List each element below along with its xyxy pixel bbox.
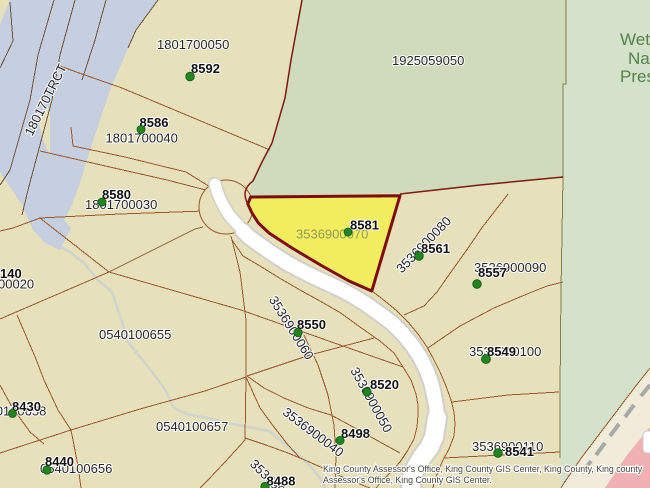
svg-text:Wetlan: Wetlan <box>620 30 650 49</box>
svg-text:0540100657: 0540100657 <box>156 419 228 434</box>
svg-text:8561: 8561 <box>421 241 450 256</box>
svg-text:Assessor's Office, King County: Assessor's Office, King County GIS Cente… <box>323 475 492 485</box>
svg-text:King County Assessor's Office,: King County Assessor's Office, King Coun… <box>323 464 643 474</box>
svg-text:Natur: Natur <box>628 49 650 68</box>
svg-text:8498: 8498 <box>341 426 370 441</box>
svg-text:8580: 8580 <box>102 187 131 202</box>
svg-text:Preser: Preser <box>620 67 650 86</box>
svg-text:1801700050: 1801700050 <box>157 37 229 52</box>
svg-text:8557: 8557 <box>478 265 507 280</box>
svg-text:8581: 8581 <box>350 218 379 233</box>
svg-text:8488: 8488 <box>267 474 296 488</box>
svg-text:8592: 8592 <box>191 61 220 76</box>
svg-text:00020: 00020 <box>0 277 34 292</box>
svg-text:8549: 8549 <box>487 344 516 359</box>
svg-text:1925059050: 1925059050 <box>392 53 464 68</box>
svg-text:8541: 8541 <box>505 444 534 459</box>
svg-text:8520: 8520 <box>370 377 399 392</box>
svg-text:0540100655: 0540100655 <box>99 327 171 342</box>
